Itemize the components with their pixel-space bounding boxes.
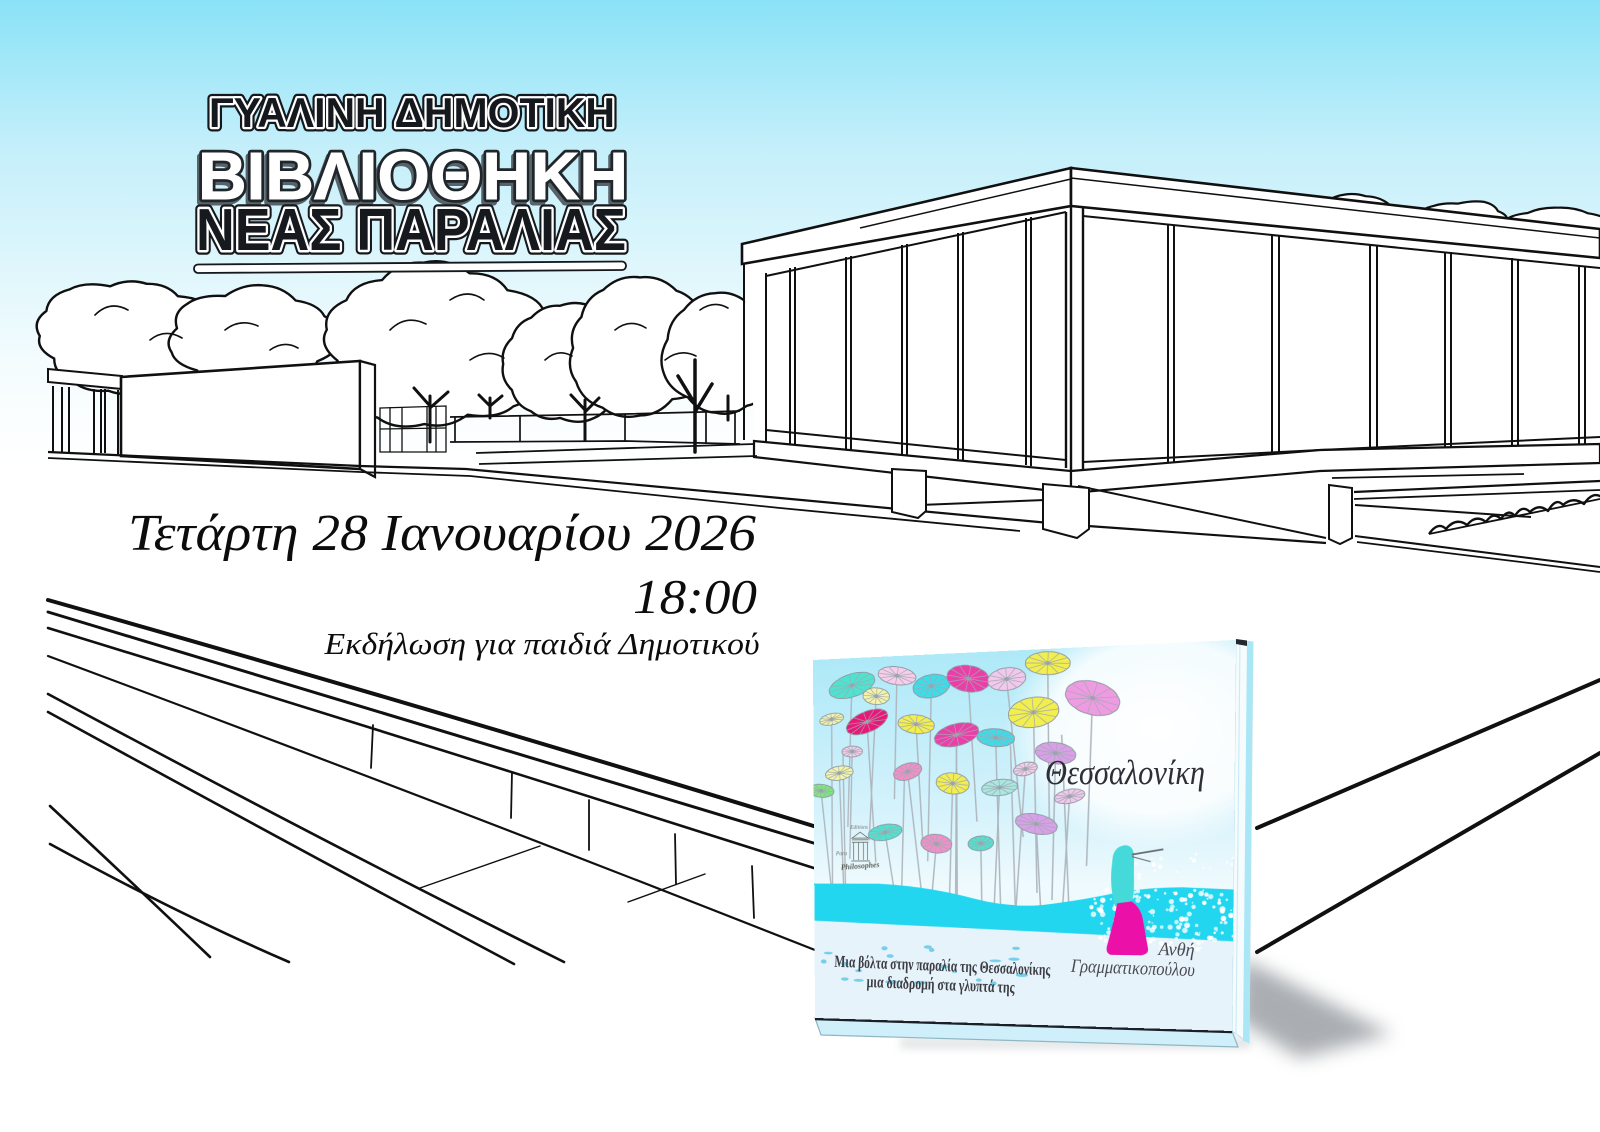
svg-text:Θεσσαλονίκη: Θεσσαλονίκη xyxy=(1045,753,1205,792)
svg-text:Γραμματικοπούλου: Γραμματικοπούλου xyxy=(1070,956,1196,981)
svg-text:Ανθή: Ανθή xyxy=(1156,939,1195,961)
